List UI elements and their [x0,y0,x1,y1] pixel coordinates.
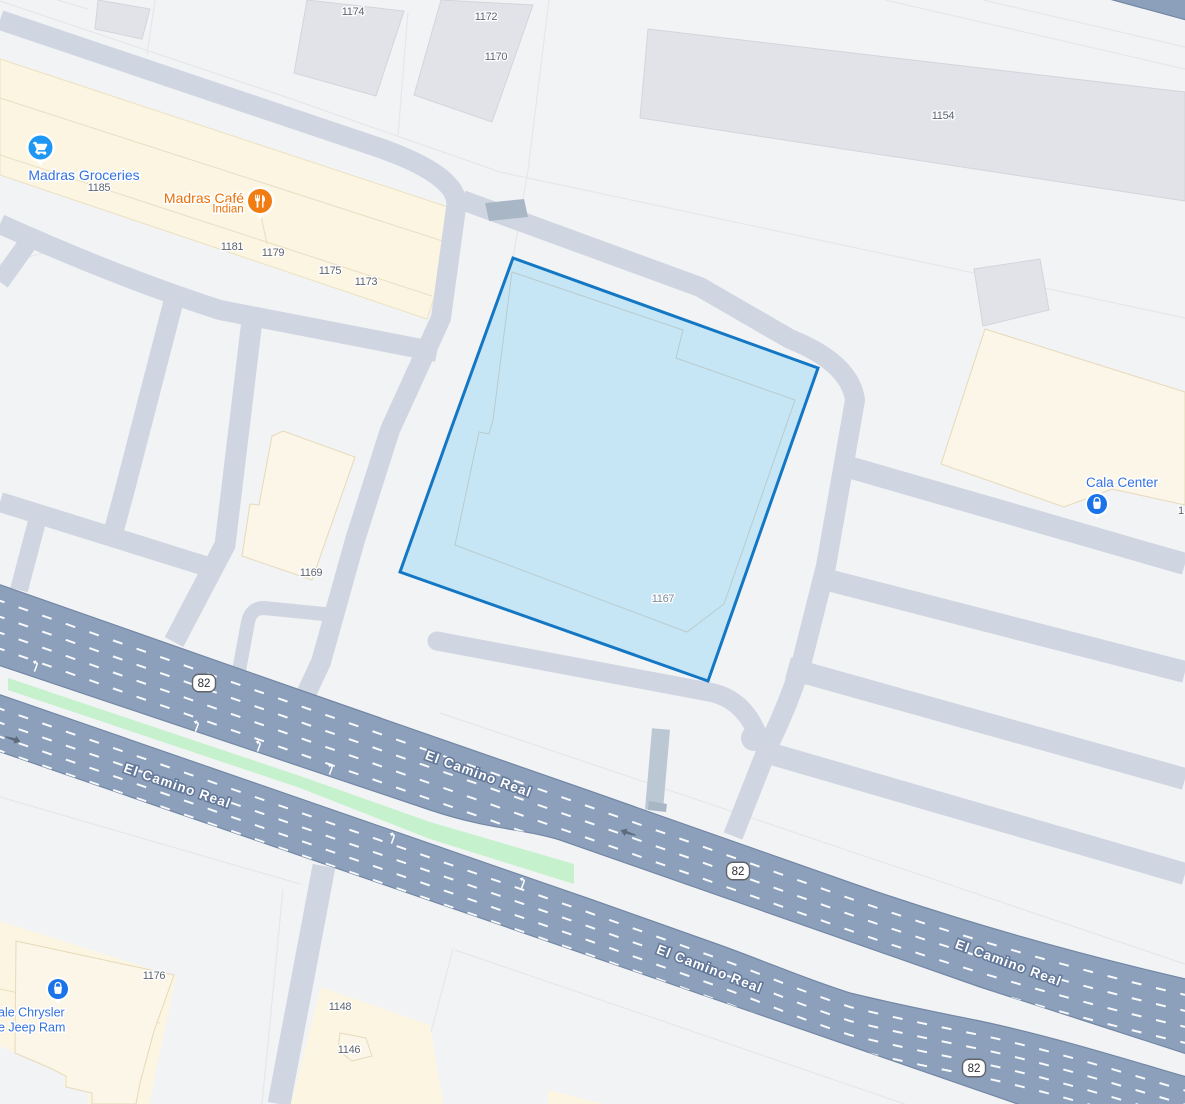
svg-text:1174: 1174 [342,6,365,18]
svg-text:1176: 1176 [143,970,166,982]
svg-text:1185: 1185 [88,182,111,194]
svg-text:Madras Groceries: Madras Groceries [28,167,139,183]
svg-text:1179: 1179 [262,247,285,259]
svg-text:82: 82 [198,678,211,690]
svg-text:Indian: Indian [212,204,243,216]
svg-text:1167: 1167 [652,593,675,605]
svg-text:1173: 1173 [355,276,378,288]
svg-text:82: 82 [968,1063,981,1075]
svg-text:Cala Center: Cala Center [1086,475,1159,490]
svg-text:1170: 1170 [485,51,508,63]
svg-text:1: 1 [1178,505,1184,517]
svg-text:1175: 1175 [319,265,342,277]
svg-text:1172: 1172 [475,11,498,23]
svg-text:ale Chrysler: ale Chrysler [0,1006,65,1020]
svg-text:e Jeep Ram: e Jeep Ram [0,1021,65,1035]
svg-text:1181: 1181 [221,241,244,253]
svg-text:1154: 1154 [932,110,955,122]
svg-text:1148: 1148 [329,1001,352,1013]
svg-text:1169: 1169 [300,567,323,579]
svg-text:82: 82 [732,866,745,878]
svg-text:1146: 1146 [338,1044,361,1056]
